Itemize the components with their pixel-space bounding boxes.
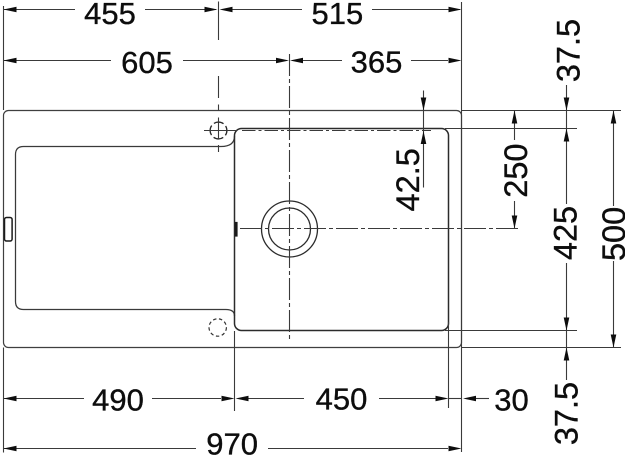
svg-text:37.5: 37.5 xyxy=(549,382,585,445)
svg-text:490: 490 xyxy=(92,383,144,418)
svg-text:455: 455 xyxy=(84,0,136,31)
svg-text:37.5: 37.5 xyxy=(551,19,587,82)
svg-text:250: 250 xyxy=(498,143,534,197)
svg-text:30: 30 xyxy=(494,383,528,418)
svg-text:450: 450 xyxy=(316,381,368,416)
svg-text:500: 500 xyxy=(596,207,625,261)
svg-text:42.5: 42.5 xyxy=(390,148,426,211)
svg-text:605: 605 xyxy=(121,45,173,80)
svg-text:425: 425 xyxy=(548,206,584,260)
svg-text:515: 515 xyxy=(312,0,364,31)
svg-text:970: 970 xyxy=(206,427,258,458)
svg-text:365: 365 xyxy=(351,45,403,80)
